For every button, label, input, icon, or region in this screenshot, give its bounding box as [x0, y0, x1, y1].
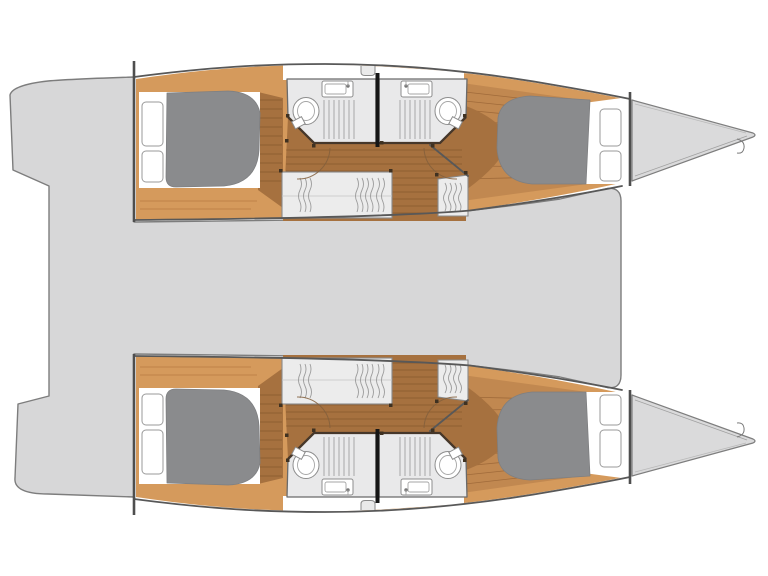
- pillow: [600, 109, 621, 146]
- coachroof-notch: [361, 66, 375, 76]
- aft-cabin-berth: [139, 91, 260, 188]
- bathroom-divider-bulkhead: [376, 73, 380, 147]
- catamaran-floor-plan-image: [0, 0, 768, 576]
- shower-grate: [400, 100, 430, 139]
- mattress: [166, 91, 260, 187]
- bow-outline: [632, 100, 755, 181]
- wardrobe-small: [438, 175, 468, 216]
- starboard-hull: [134, 354, 755, 515]
- forward-cabin-berth: [497, 96, 629, 184]
- pillow: [600, 151, 621, 181]
- pillow: [142, 151, 163, 182]
- shower-grate: [324, 100, 354, 139]
- pillow: [142, 102, 163, 146]
- catamaran-floor-plan: [0, 0, 768, 576]
- bow-deck: [632, 100, 755, 181]
- mattress: [497, 96, 590, 184]
- port-hull: [134, 61, 755, 222]
